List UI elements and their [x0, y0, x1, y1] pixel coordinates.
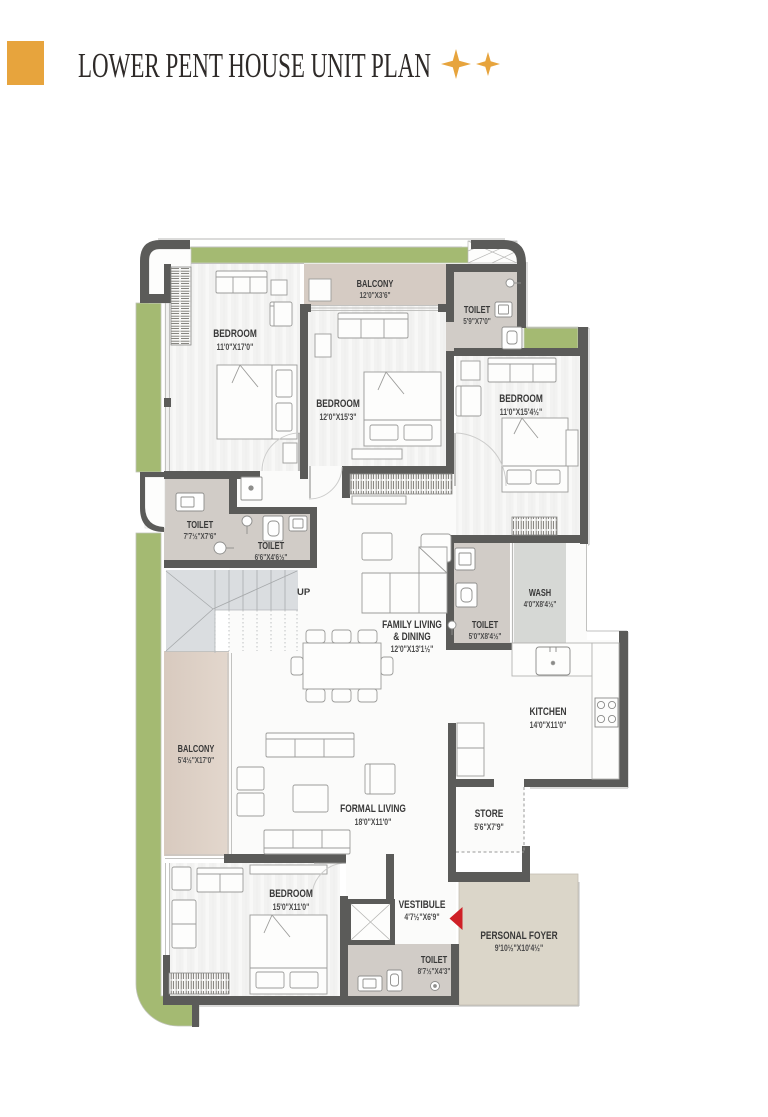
svg-text:18'0"X11'0": 18'0"X11'0"	[355, 817, 392, 827]
svg-text:TOILET: TOILET	[421, 954, 448, 965]
svg-text:BEDROOM: BEDROOM	[269, 888, 313, 900]
svg-text:7'7½"X7'6": 7'7½"X7'6"	[184, 531, 217, 541]
svg-text:5'6"X7'9": 5'6"X7'9"	[474, 822, 504, 832]
svg-text:12'0"X13'1½": 12'0"X13'1½"	[391, 644, 434, 654]
svg-text:TOILET: TOILET	[258, 540, 285, 551]
svg-text:FORMAL LIVING: FORMAL LIVING	[340, 803, 406, 815]
svg-text:STORE: STORE	[475, 808, 504, 820]
svg-text:5'9"X7'0": 5'9"X7'0"	[463, 316, 491, 326]
svg-text:PERSONAL FOYER: PERSONAL FOYER	[480, 930, 557, 942]
svg-text:11'0"X15'4½": 11'0"X15'4½"	[500, 407, 543, 417]
svg-text:BEDROOM: BEDROOM	[499, 393, 543, 405]
svg-text:LOWER PENT HOUSE UNIT PLAN: LOWER PENT HOUSE UNIT PLAN	[78, 46, 431, 85]
svg-text:BALCONY: BALCONY	[178, 743, 215, 754]
svg-text:UP: UP	[297, 587, 311, 598]
svg-text:11'0"X17'0": 11'0"X17'0"	[217, 342, 254, 352]
svg-text:& DINING: & DINING	[393, 631, 431, 643]
svg-text:VESTIBULE: VESTIBULE	[399, 899, 446, 911]
svg-text:KITCHEN: KITCHEN	[529, 706, 566, 718]
svg-text:15'0"X11'0": 15'0"X11'0"	[273, 902, 310, 912]
svg-text:TOILET: TOILET	[472, 619, 499, 630]
svg-text:12'0"X3'6": 12'0"X3'6"	[359, 290, 390, 300]
svg-text:FAMILY LIVING: FAMILY LIVING	[382, 619, 442, 631]
svg-text:BEDROOM: BEDROOM	[213, 328, 257, 340]
svg-text:6'6"X4'6½": 6'6"X4'6½"	[255, 552, 288, 562]
svg-text:TOILET: TOILET	[464, 304, 491, 315]
svg-text:4'7½"X6'9": 4'7½"X6'9"	[404, 912, 439, 922]
svg-text:WASH: WASH	[529, 587, 551, 598]
svg-text:12'0"X15'3": 12'0"X15'3"	[319, 412, 356, 422]
svg-text:4'0"X8'4½": 4'0"X8'4½"	[524, 599, 557, 609]
svg-text:9'10½"X10'4½": 9'10½"X10'4½"	[495, 943, 544, 953]
svg-text:5'0"X8'4½": 5'0"X8'4½"	[469, 631, 502, 641]
svg-text:TOILET: TOILET	[187, 519, 214, 530]
svg-text:14'0"X11'0": 14'0"X11'0"	[530, 720, 567, 730]
svg-text:BALCONY: BALCONY	[357, 278, 394, 289]
svg-text:BEDROOM: BEDROOM	[316, 398, 360, 410]
svg-text:8'7½"X4'3": 8'7½"X4'3"	[418, 966, 451, 976]
svg-text:5'4½"X17'0": 5'4½"X17'0"	[178, 755, 215, 765]
